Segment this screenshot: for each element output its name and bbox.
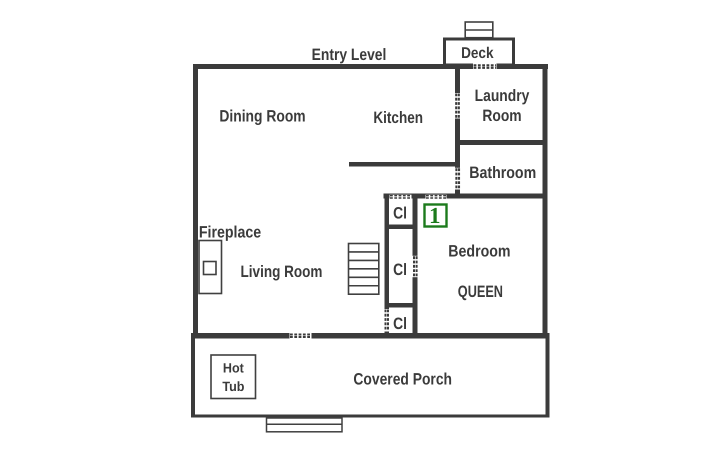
svg-text:Fireplace: Fireplace [199, 224, 261, 242]
svg-text:Tub: Tub [222, 379, 244, 394]
svg-text:1: 1 [429, 203, 441, 228]
svg-text:Covered Porch: Covered Porch [353, 371, 452, 389]
svg-text:Dining Room: Dining Room [219, 108, 305, 126]
svg-text:Hot: Hot [223, 360, 244, 375]
svg-text:Entry Level: Entry Level [312, 46, 387, 64]
svg-text:Cl: Cl [393, 205, 407, 223]
svg-text:Cl: Cl [393, 261, 407, 279]
svg-text:Laundry: Laundry [475, 87, 530, 105]
svg-text:Bedroom: Bedroom [448, 243, 510, 261]
svg-text:Deck: Deck [461, 45, 494, 62]
svg-text:Room: Room [482, 107, 521, 125]
svg-text:Bathroom: Bathroom [469, 164, 536, 182]
svg-text:Kitchen: Kitchen [373, 109, 423, 127]
svg-text:Cl: Cl [393, 315, 407, 333]
svg-text:QUEEN: QUEEN [458, 283, 503, 301]
svg-text:Living Room: Living Room [241, 263, 323, 281]
